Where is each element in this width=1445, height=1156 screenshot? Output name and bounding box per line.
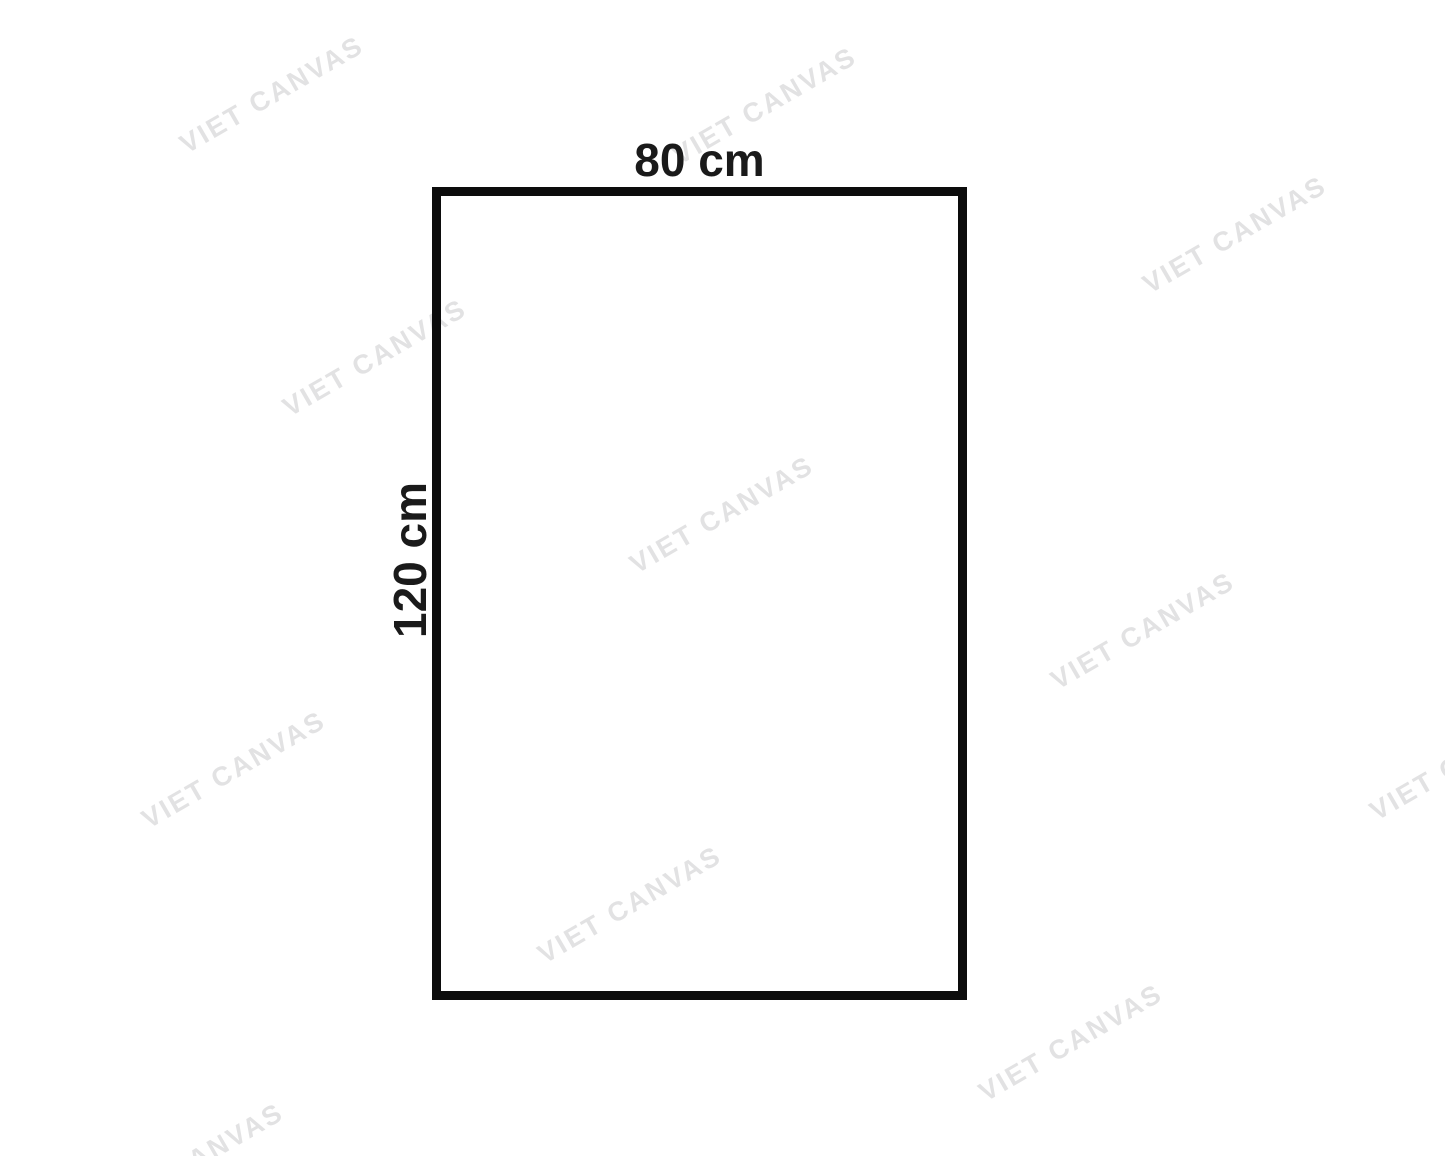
canvas-outline-rectangle — [432, 187, 967, 1000]
width-dimension-label: 80 cm — [432, 133, 967, 187]
watermark-text: VIET CANVAS — [175, 30, 370, 160]
watermark-text: VIET CANVAS — [95, 1097, 290, 1156]
height-dimension-label: 120 cm — [383, 482, 437, 638]
watermark-text: VIET CANVAS — [1365, 697, 1445, 827]
watermark-text: VIET CANVAS — [1046, 566, 1241, 696]
watermark-text: VIET CANVAS — [974, 978, 1169, 1108]
watermark-text: VIET CANVAS — [137, 705, 332, 835]
watermark-text: VIET CANVAS — [1138, 170, 1333, 300]
dimension-diagram: VIET CANVASVIET CANVASVIET CANVASVIET CA… — [0, 0, 1445, 1156]
